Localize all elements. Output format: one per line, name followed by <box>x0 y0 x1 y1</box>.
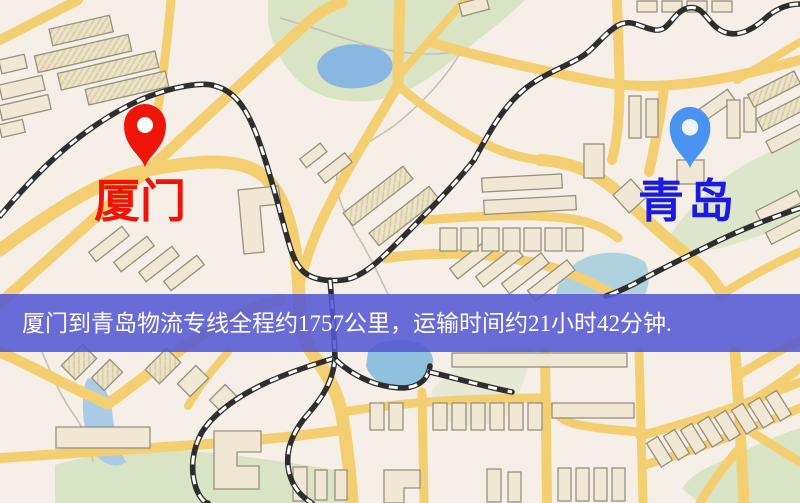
info-banner: 厦门到青岛物流专线全程约1757公里，运输时间约21小时42分钟. <box>0 294 800 352</box>
banner-text: 厦门到青岛物流专线全程约1757公里，运输时间约21小时42分钟. <box>22 311 672 336</box>
destination-label: 青岛 <box>638 176 738 227</box>
map-screenshot: 青岛 厦门 厦门到青岛物流专线全程约1757公里，运输时间约21小时42分钟. <box>0 0 800 503</box>
map-canvas[interactable]: 青岛 厦门 厦门到青岛物流专线全程约1757公里，运输时间约21小时42分钟. <box>0 0 800 503</box>
origin-label: 厦门 <box>94 176 186 227</box>
